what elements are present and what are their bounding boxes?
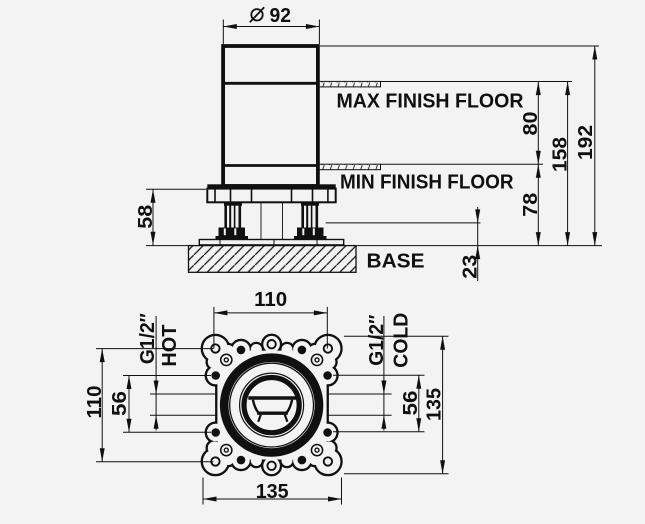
svg-text:23: 23 bbox=[458, 255, 481, 279]
svg-text:135: 135 bbox=[256, 480, 289, 503]
svg-text:MIN FINISH FLOOR: MIN FINISH FLOOR bbox=[340, 171, 514, 194]
svg-text:135: 135 bbox=[423, 388, 446, 421]
svg-text:110: 110 bbox=[254, 288, 287, 311]
svg-text:COLD: COLD bbox=[390, 313, 413, 368]
svg-text:G1/2″: G1/2″ bbox=[365, 315, 388, 366]
svg-text:80: 80 bbox=[519, 112, 542, 136]
svg-text:MAX FINISH FLOOR: MAX FINISH FLOOR bbox=[337, 90, 524, 113]
svg-text:56: 56 bbox=[108, 391, 131, 416]
svg-text:92: 92 bbox=[270, 4, 292, 27]
svg-text:BASE: BASE bbox=[367, 249, 425, 272]
svg-text:58: 58 bbox=[134, 205, 157, 229]
svg-text:110: 110 bbox=[83, 386, 106, 419]
svg-text:78: 78 bbox=[519, 193, 542, 217]
svg-text:158: 158 bbox=[548, 137, 571, 172]
svg-text:56: 56 bbox=[399, 391, 422, 416]
svg-text:HOT: HOT bbox=[158, 324, 181, 366]
svg-text:G1/2″: G1/2″ bbox=[136, 313, 159, 364]
svg-text:192: 192 bbox=[574, 125, 597, 160]
